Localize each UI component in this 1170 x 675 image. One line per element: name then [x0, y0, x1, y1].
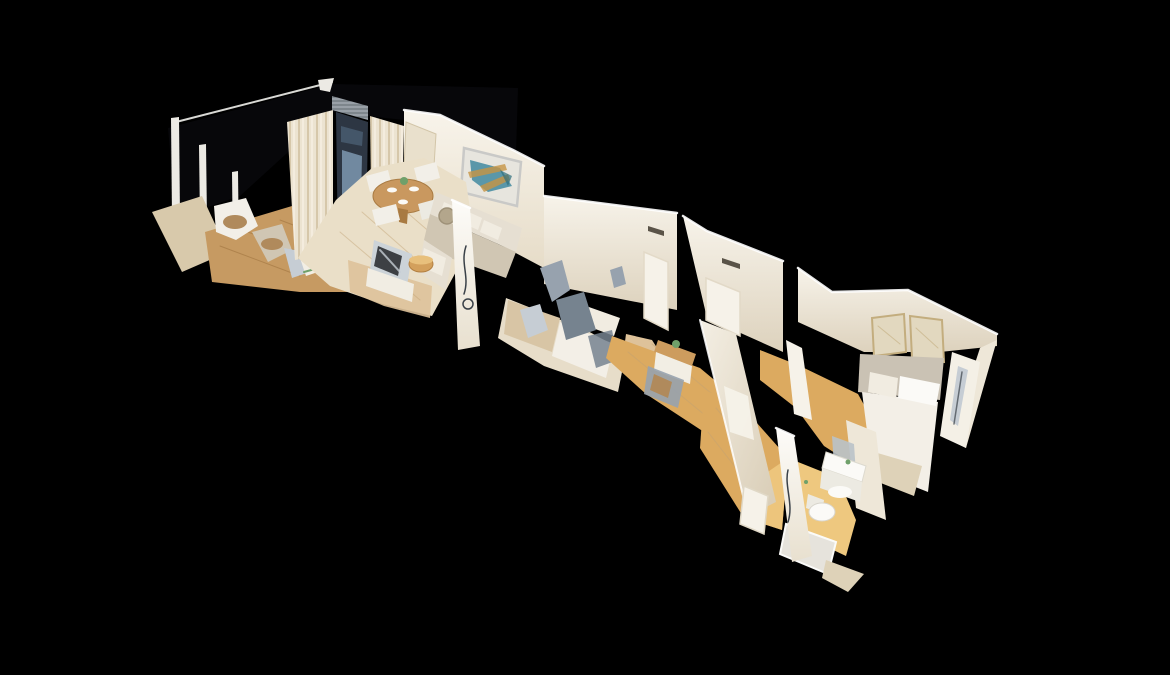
- outdoor-chair-1-seat: [223, 215, 247, 229]
- framed-artwork-2: [910, 316, 944, 362]
- plate: [409, 187, 419, 192]
- desk-plant: [672, 340, 680, 348]
- toiletry-green: [846, 460, 851, 465]
- terrace-post-1: [171, 117, 180, 218]
- toiletry-green: [804, 480, 808, 484]
- plate: [387, 188, 397, 193]
- plate: [398, 200, 408, 205]
- outdoor-chair-2-seat: [261, 238, 283, 250]
- dollhouse-3d-viewport[interactable]: [0, 0, 1170, 675]
- table-pedestal: [398, 208, 408, 224]
- towel: [828, 486, 852, 498]
- toilet-bowl: [809, 503, 835, 521]
- dollhouse-scene-canvas[interactable]: [0, 0, 1170, 675]
- table-plant: [400, 177, 408, 185]
- bedroom1-door: [644, 252, 668, 330]
- wood-pouf-top: [409, 256, 433, 265]
